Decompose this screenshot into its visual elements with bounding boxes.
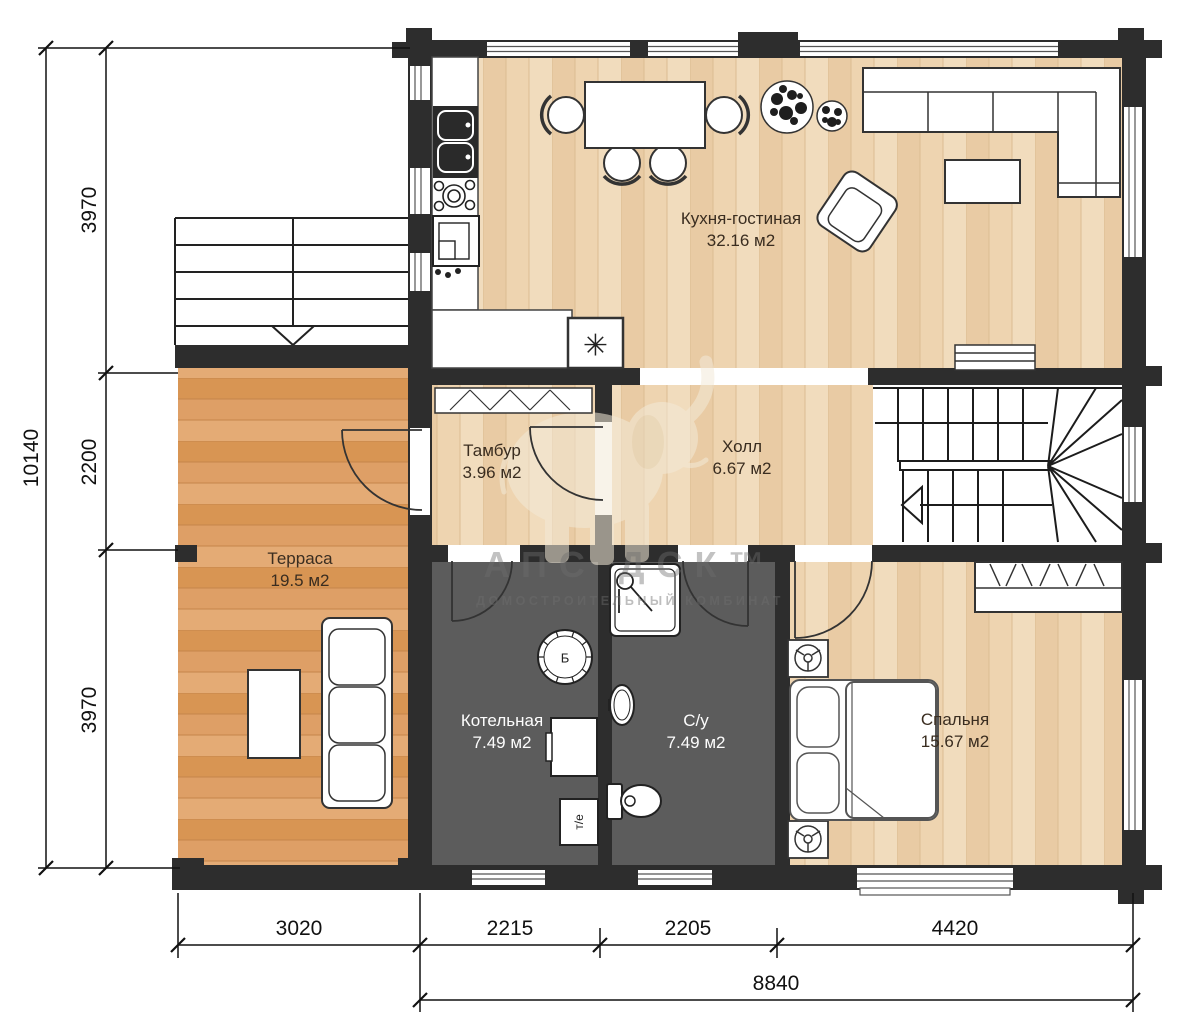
log-stub <box>406 28 432 42</box>
watermark-brand: АПС ДСК™ <box>483 544 776 586</box>
dim-bottom-seg-1: 3020 <box>276 917 323 941</box>
log-stub <box>1118 890 1144 904</box>
heat-unit-icon: т/е <box>560 799 598 845</box>
terrace-table-icon <box>248 670 300 758</box>
room-area: 3.96 м2 <box>463 462 522 484</box>
terrace-sofa-icon <box>322 618 392 808</box>
boiler-icon: Б <box>538 630 592 684</box>
dim-bottom-seg-2: 2215 <box>487 917 534 941</box>
exterior-stairs <box>175 218 408 345</box>
kitchen-counter-bottom <box>432 310 572 368</box>
log-stub <box>1118 28 1144 42</box>
room-name: Терраса <box>267 548 332 570</box>
dim-bottom-seg-3: 2205 <box>665 917 712 941</box>
dim-bottom-total: 8840 <box>753 972 800 996</box>
dining-table-icon <box>585 82 705 148</box>
room-name: Холл <box>713 436 772 458</box>
room-name: Котельная <box>461 710 543 732</box>
dim-left-seg-2: 2200 <box>78 439 102 486</box>
room-label-bedroom: Спальня 15.67 м2 <box>921 709 989 753</box>
room-area: 15.67 м2 <box>921 731 989 753</box>
dim-left-seg-3: 3970 <box>78 687 102 734</box>
room-label-hall: Холл 6.67 м2 <box>713 436 772 480</box>
room-name: Тамбур <box>463 440 522 462</box>
room-area: 7.49 м2 <box>461 732 543 754</box>
closet-icon <box>435 388 592 413</box>
dim-bottom-seg-4: 4420 <box>932 917 979 941</box>
room-name: Спальня <box>921 709 989 731</box>
bed-icon <box>790 680 938 820</box>
room-label-terrace: Терраса 19.5 м2 <box>267 548 332 592</box>
room-label-bathroom: С/у 7.49 м2 <box>667 710 726 754</box>
room-label-boiler: Котельная 7.49 м2 <box>461 710 543 754</box>
window-sill <box>860 888 1010 895</box>
room-area: 6.67 м2 <box>713 458 772 480</box>
log-stub <box>1146 543 1162 563</box>
water-heater-icon <box>546 718 597 776</box>
log-stub <box>1146 865 1162 890</box>
room-name: С/у <box>667 710 726 732</box>
svg-text:т/е: т/е <box>572 814 586 830</box>
radiator-icon <box>955 345 1035 370</box>
nightstand-icon <box>788 821 828 858</box>
double-sink-icon <box>433 106 478 178</box>
wardrobe-icon <box>975 562 1122 612</box>
dim-left-seg-1: 3970 <box>78 187 102 234</box>
terrace-post <box>175 545 197 562</box>
toilet-icon <box>607 784 661 819</box>
floor-plan-page: ✳ <box>0 0 1188 1032</box>
nightstand-icon <box>788 640 828 677</box>
log-stub <box>738 32 798 58</box>
room-area: 7.49 м2 <box>667 732 726 754</box>
room-area: 19.5 м2 <box>267 570 332 592</box>
coffee-table-icon <box>945 160 1020 203</box>
svg-text:Б: Б <box>561 651 570 666</box>
stairs-down-arrow-icon <box>272 326 314 345</box>
log-stub <box>1146 40 1162 58</box>
log-stub <box>392 42 408 58</box>
floor-plan-drawing: ✳ <box>0 0 1188 1032</box>
svg-text:✳: ✳ <box>583 330 608 363</box>
terrace-post <box>398 858 432 890</box>
dim-left-total: 10140 <box>20 429 44 487</box>
room-label-kitchen: Кухня-гостиная 32.16 м2 <box>681 208 801 252</box>
room-area: 32.16 м2 <box>681 230 801 252</box>
watermark-subtitle: ДОМОСТРОИТЕЛЬНЫЙ КОМБИНАТ <box>476 594 784 608</box>
fireplace-icon: ✳ <box>568 318 623 368</box>
log-stub <box>1146 366 1162 386</box>
terrace-post <box>172 858 204 890</box>
room-label-tambour: Тамбур 3.96 м2 <box>463 440 522 484</box>
room-name: Кухня-гостиная <box>681 208 801 230</box>
